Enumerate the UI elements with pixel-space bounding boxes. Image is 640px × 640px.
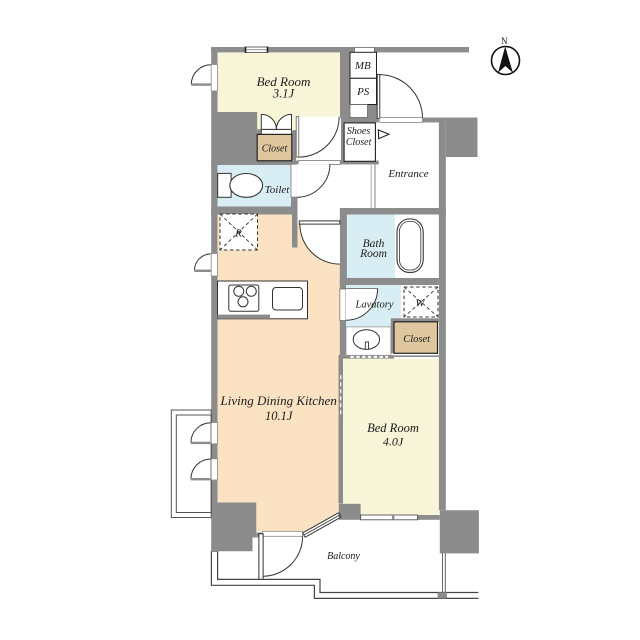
svg-text:R: R bbox=[234, 228, 242, 240]
svg-text:Closet: Closet bbox=[403, 334, 431, 345]
svg-text:Bed Room: Bed Room bbox=[367, 421, 419, 435]
svg-text:3.1J: 3.1J bbox=[272, 87, 296, 101]
svg-text:Entrance: Entrance bbox=[387, 168, 428, 180]
svg-text:Balcony: Balcony bbox=[327, 551, 360, 562]
svg-text:MB: MB bbox=[354, 60, 371, 72]
svg-text:10.1J: 10.1J bbox=[265, 409, 294, 423]
svg-text:N: N bbox=[501, 36, 508, 46]
svg-text:Shoes: Shoes bbox=[347, 126, 370, 137]
svg-text:W: W bbox=[415, 298, 425, 310]
svg-text:Closet: Closet bbox=[346, 137, 372, 148]
svg-text:Toilet: Toilet bbox=[265, 184, 291, 196]
svg-text:Lavatory: Lavatory bbox=[355, 300, 394, 311]
svg-text:Room: Room bbox=[359, 248, 387, 260]
svg-text:4.0J: 4.0J bbox=[383, 435, 404, 449]
svg-text:PS: PS bbox=[356, 86, 370, 98]
svg-text:Closet: Closet bbox=[262, 144, 288, 155]
svg-text:Living Dining Kitchen: Living Dining Kitchen bbox=[220, 393, 337, 408]
